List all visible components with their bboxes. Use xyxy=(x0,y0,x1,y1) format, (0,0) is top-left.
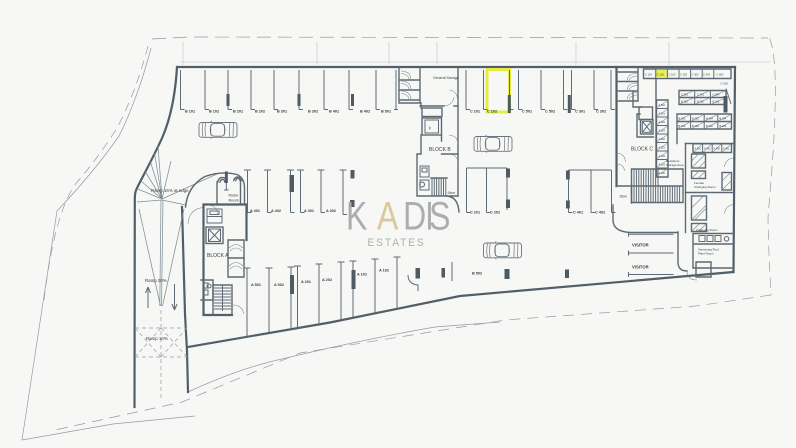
svg-text:Ramp 10%: Ramp 10% xyxy=(146,336,168,341)
svg-text:Changing Room: Changing Room xyxy=(696,228,718,232)
svg-text:A 402: A 402 xyxy=(704,148,711,151)
svg-text:A 401: A 401 xyxy=(723,148,730,151)
svg-text:VISITOR: VISITOR xyxy=(632,265,649,270)
svg-text:A 202: A 202 xyxy=(322,278,332,282)
svg-text:C 401: C 401 xyxy=(573,211,583,215)
svg-text:B 102: B 102 xyxy=(681,100,688,104)
svg-text:General Storage: General Storage xyxy=(433,76,459,80)
svg-text:C 203: C 203 xyxy=(680,73,687,77)
svg-text:Ramp 16% at edge: Ramp 16% at edge xyxy=(151,188,189,193)
svg-text:C 402: C 402 xyxy=(697,93,704,97)
svg-text:A 501: A 501 xyxy=(251,283,261,287)
svg-text:C 302: C 302 xyxy=(596,109,606,113)
svg-text:C 102: C 102 xyxy=(657,73,664,77)
svg-text:BLOCK C: BLOCK C xyxy=(631,147,653,153)
svg-text:B 302: B 302 xyxy=(713,100,720,104)
svg-text:ESTATES: ESTATES xyxy=(368,237,426,249)
svg-text:Room: Room xyxy=(229,197,239,202)
svg-text:A 203: A 203 xyxy=(659,130,666,133)
svg-text:C 202: C 202 xyxy=(490,211,500,215)
svg-text:C 102: C 102 xyxy=(487,109,497,113)
svg-text:C 604: C 604 xyxy=(713,93,720,97)
svg-text:B 302: B 302 xyxy=(308,109,318,113)
svg-text:C 301: C 301 xyxy=(575,109,585,113)
svg-text:B 104: B 104 xyxy=(679,124,686,128)
svg-text:B 404: B 404 xyxy=(706,116,713,120)
svg-text:B 402: B 402 xyxy=(692,116,699,120)
svg-text:A 101: A 101 xyxy=(357,273,367,277)
svg-text:B 301: B 301 xyxy=(277,109,287,113)
svg-text:B 304: B 304 xyxy=(720,124,727,128)
svg-text:A 104: A 104 xyxy=(659,155,666,158)
svg-text:C 403: C 403 xyxy=(703,73,710,77)
svg-text:A 204: A 204 xyxy=(659,121,666,124)
svg-text:B 502: B 502 xyxy=(472,272,482,276)
svg-text:B 201: B 201 xyxy=(233,109,243,113)
svg-text:B 204: B 204 xyxy=(692,124,699,128)
svg-text:A 402: A 402 xyxy=(714,148,721,151)
svg-text:B 501: B 501 xyxy=(381,109,391,113)
svg-text:C 501: C 501 xyxy=(522,109,532,113)
svg-text:B 304: B 304 xyxy=(720,116,727,120)
svg-text:A 302: A 302 xyxy=(695,148,702,151)
svg-text:BLOCK A: BLOCK A xyxy=(207,253,229,259)
svg-text:Store: Store xyxy=(620,195,628,199)
svg-text:A 301: A 301 xyxy=(304,209,314,213)
svg-text:C 402: C 402 xyxy=(595,211,605,215)
svg-text:C 502: C 502 xyxy=(681,93,688,97)
svg-text:C 103: C 103 xyxy=(669,73,676,77)
svg-text:B 202: B 202 xyxy=(697,100,704,104)
svg-text:C 101: C 101 xyxy=(470,109,480,113)
svg-text:A 102: A 102 xyxy=(379,269,389,273)
svg-text:A 402: A 402 xyxy=(271,209,281,213)
svg-text:B 402: B 402 xyxy=(360,109,370,113)
svg-text:A 100: A 100 xyxy=(659,172,666,175)
svg-text:A 202: A 202 xyxy=(659,138,666,141)
svg-text:B 102: B 102 xyxy=(209,109,219,113)
svg-text:A 502: A 502 xyxy=(274,283,284,287)
svg-text:Plant Room: Plant Room xyxy=(698,252,714,256)
svg-text:A 302: A 302 xyxy=(326,209,336,213)
svg-text:A 401: A 401 xyxy=(250,209,260,213)
svg-text:B 202: B 202 xyxy=(706,124,713,128)
svg-text:A 201: A 201 xyxy=(301,280,311,284)
svg-text:C 601: C 601 xyxy=(721,82,729,86)
svg-text:A 302: A 302 xyxy=(659,104,666,107)
svg-text:B 202: B 202 xyxy=(255,109,265,113)
svg-text:A 301: A 301 xyxy=(659,113,666,116)
svg-text:C 101: C 101 xyxy=(645,73,652,77)
svg-text:VISITOR: VISITOR xyxy=(632,243,649,248)
svg-text:C 303: C 303 xyxy=(692,73,699,77)
svg-text:B 101: B 101 xyxy=(185,109,195,113)
svg-text:Ramp 20%: Ramp 20% xyxy=(145,278,167,283)
svg-text:Changing Room: Changing Room xyxy=(694,185,716,189)
svg-text:BLOCK B: BLOCK B xyxy=(429,147,451,153)
svg-text:A 201: A 201 xyxy=(659,147,666,150)
svg-text:A 103: A 103 xyxy=(659,164,666,167)
svg-text:KADIS: KADIS xyxy=(346,193,450,238)
svg-text:C 201: C 201 xyxy=(470,211,480,215)
svg-text:B 401: B 401 xyxy=(329,109,339,113)
svg-text:C 602: C 602 xyxy=(717,73,724,77)
svg-text:Storage Area: Storage Area xyxy=(666,163,684,167)
svg-text:C 502: C 502 xyxy=(545,109,555,113)
svg-text:B 302: B 302 xyxy=(679,116,686,120)
